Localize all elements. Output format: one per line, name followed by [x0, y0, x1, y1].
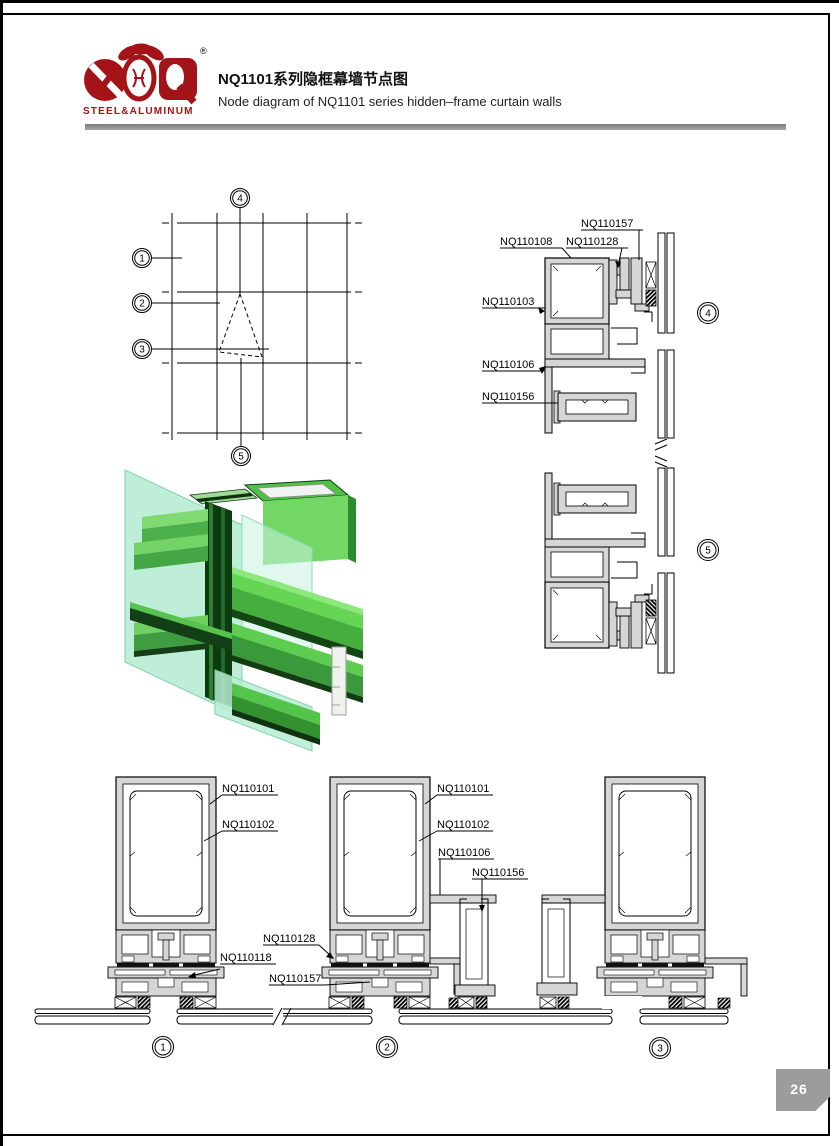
isometric-render — [120, 455, 380, 755]
logo-monogram-icon — [84, 57, 197, 102]
part-label: NQ110108 — [500, 236, 552, 248]
section-callout-5: 5 — [705, 546, 711, 557]
section-detail-2 — [322, 777, 438, 1008]
part-label: NQ110157 — [269, 973, 321, 985]
part-label: NQ110101 — [222, 783, 274, 795]
part-label: NQ110156 — [472, 867, 524, 879]
part-label: NQ110102 — [437, 819, 489, 831]
key-plan-grid — [162, 213, 362, 440]
page-number: 26 — [790, 1081, 808, 1097]
keyplan-callout-1: 1 — [139, 254, 145, 265]
section-detail-1 — [108, 777, 224, 1008]
gasket-mask — [602, 996, 642, 1009]
part-label: NQ110102 — [222, 819, 274, 831]
page-number-tab: 26 — [776, 1069, 830, 1111]
keyplan-callout-2: 2 — [139, 299, 145, 310]
horizontal-sections-drawing: NQ110101 NQ110102 NQ110101 NQ110102 NQ11… — [30, 770, 770, 1060]
part-label: NQ110106 — [438, 847, 490, 859]
logo-reg-mark: ® — [200, 46, 207, 56]
key-plan-node-triangle — [219, 294, 262, 357]
section-detail-4 — [545, 233, 674, 450]
vertical-section-drawing: NQ110157 NQ110108 NQ110128 NQ110103 NQ11… — [470, 210, 740, 695]
part-label: NQ110128 — [566, 236, 618, 248]
section-detail-5 — [545, 456, 674, 673]
part-label: NQ110101 — [437, 783, 489, 795]
keyplan-callout-4: 4 — [237, 194, 243, 205]
glass-strips — [35, 1009, 728, 1024]
section-callout-3: 3 — [657, 1044, 663, 1055]
section-callout-2: 2 — [384, 1043, 390, 1054]
catalog-page: ® STEEL&ALUMINUM NQ1101系列隐框幕墙节点图 Node di… — [0, 0, 839, 1146]
section-callout-1: 1 — [160, 1043, 166, 1054]
part-label: NQ110103 — [482, 296, 534, 308]
section-callout-4: 4 — [705, 309, 711, 320]
detail-2-attachments — [430, 895, 496, 1008]
part-label: NQ110128 — [263, 933, 315, 945]
part-label: NQ110156 — [482, 391, 534, 403]
page-title-en: Node diagram of NQ1101 series hidden–fra… — [218, 94, 562, 109]
section-detail-3 — [597, 777, 713, 1008]
part-label: NQ110157 — [581, 218, 633, 230]
header-rule — [85, 124, 786, 130]
keyplan-callout-3: 3 — [139, 345, 145, 356]
key-plan-diagram: 1 2 3 4 5 — [110, 185, 390, 475]
company-logo: ® — [82, 42, 210, 108]
brand-text: STEEL&ALUMINUM — [83, 106, 223, 117]
part-label: NQ110118 — [220, 952, 272, 964]
part-label: NQ110106 — [482, 359, 534, 371]
page-title-zh: NQ1101系列隐框幕墙节点图 — [218, 68, 408, 89]
